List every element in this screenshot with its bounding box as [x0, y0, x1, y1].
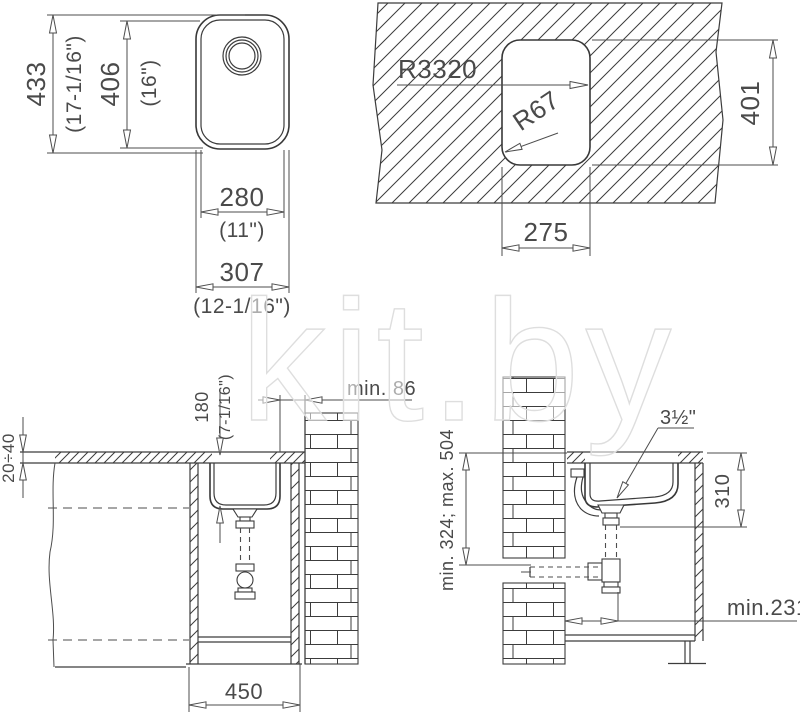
cutout-edge-radius-label: R3320: [398, 54, 477, 84]
cutout-view: R3320 R67 401 275: [373, 3, 778, 256]
plan-bowl-width-label: 280: [220, 182, 265, 212]
countertop-thickness-label: 20÷40: [0, 433, 18, 483]
drain-hole: [223, 37, 261, 75]
cutout-height-label: 401: [735, 81, 765, 126]
cabinet-width-label: 450: [225, 679, 263, 704]
plan-length-inches-label: (17-1/16"): [63, 35, 86, 133]
cutout-width-label: 275: [524, 217, 569, 247]
sink-installation-drawing: 433 (17-1/16") 406 (16") 280 (11") 307 (…: [0, 0, 800, 713]
cabinet-side: [565, 463, 706, 664]
sink-bowl-side-section: [585, 463, 678, 507]
sink-bowl-section: [210, 463, 280, 509]
bowl-depth-label: 180: [192, 391, 212, 423]
wall-to-drain-label: min.231: [727, 595, 800, 620]
drain-trap-assembly: [233, 509, 257, 599]
overflow-pipe: [571, 469, 601, 516]
plan-length-label: 433: [21, 62, 51, 107]
plan-bowl-width-inches-label: (11"): [219, 219, 265, 242]
plan-bowl-length-inches-label: (16"): [138, 59, 161, 106]
bowl-depth-inches-label: (7-1/16"): [217, 374, 234, 440]
plan-bowl-length-label: 406: [95, 62, 125, 107]
sink-outline: [196, 15, 289, 149]
rim-to-outlet-label: 310: [712, 474, 734, 509]
watermark: kit.by: [240, 265, 677, 457]
technical-drawing-page: 433 (17-1/16") 406 (16") 280 (11") 307 (…: [0, 0, 800, 713]
